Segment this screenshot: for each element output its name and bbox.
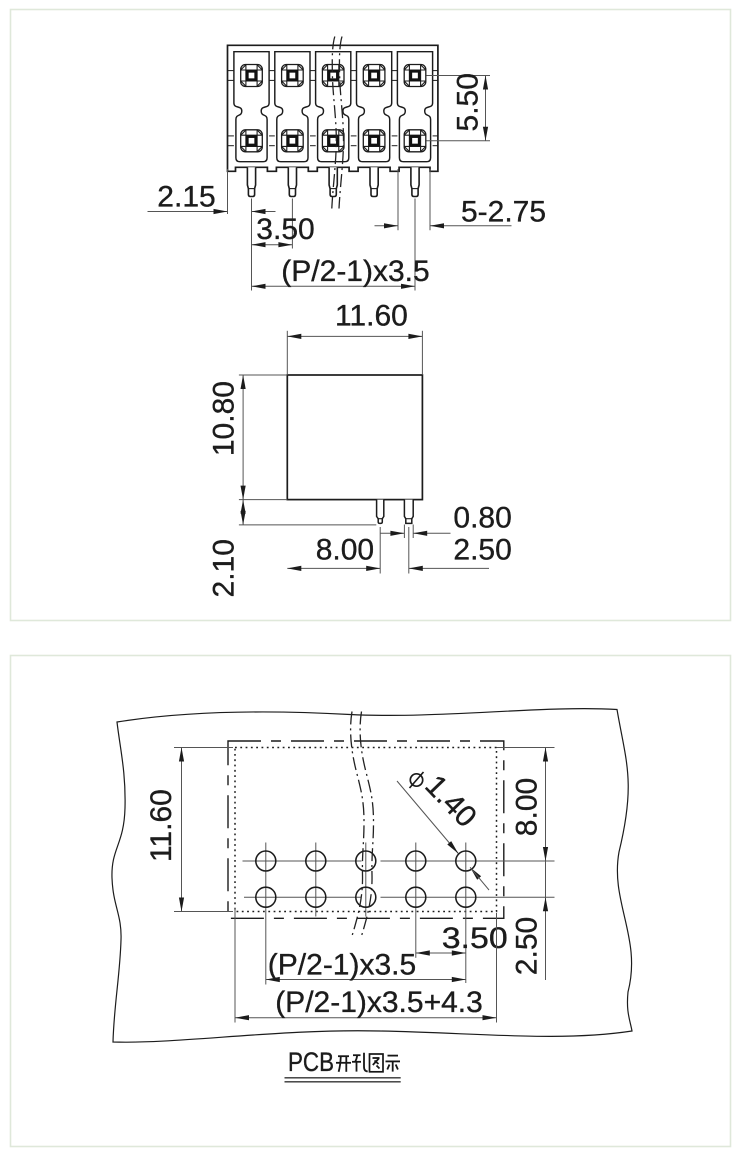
svg-text:2.15: 2.15: [157, 181, 215, 214]
svg-text:10.80: 10.80: [208, 381, 241, 456]
svg-text:(P/2-1)x3.5+4.3: (P/2-1)x3.5+4.3: [275, 986, 483, 1019]
svg-text:(P/2-1)x3.5: (P/2-1)x3.5: [281, 255, 429, 288]
svg-text:2.10: 2.10: [208, 539, 241, 597]
svg-text:8.00: 8.00: [316, 534, 374, 567]
svg-text:5-2.75: 5-2.75: [461, 196, 546, 229]
svg-text:5.50: 5.50: [452, 73, 485, 131]
svg-text:11.60: 11.60: [335, 300, 408, 333]
svg-text:(P/2-1)x3.5: (P/2-1)x3.5: [268, 949, 416, 982]
svg-text:0.80: 0.80: [453, 502, 511, 535]
svg-text:PCB: PCB: [288, 1047, 334, 1077]
svg-text:8.00: 8.00: [510, 778, 543, 836]
svg-text:2.50: 2.50: [453, 534, 511, 567]
svg-text:3.50: 3.50: [256, 213, 314, 246]
svg-text:2.50: 2.50: [510, 917, 543, 975]
svg-text:11.60: 11.60: [145, 789, 178, 862]
svg-text:3.50: 3.50: [442, 922, 508, 955]
